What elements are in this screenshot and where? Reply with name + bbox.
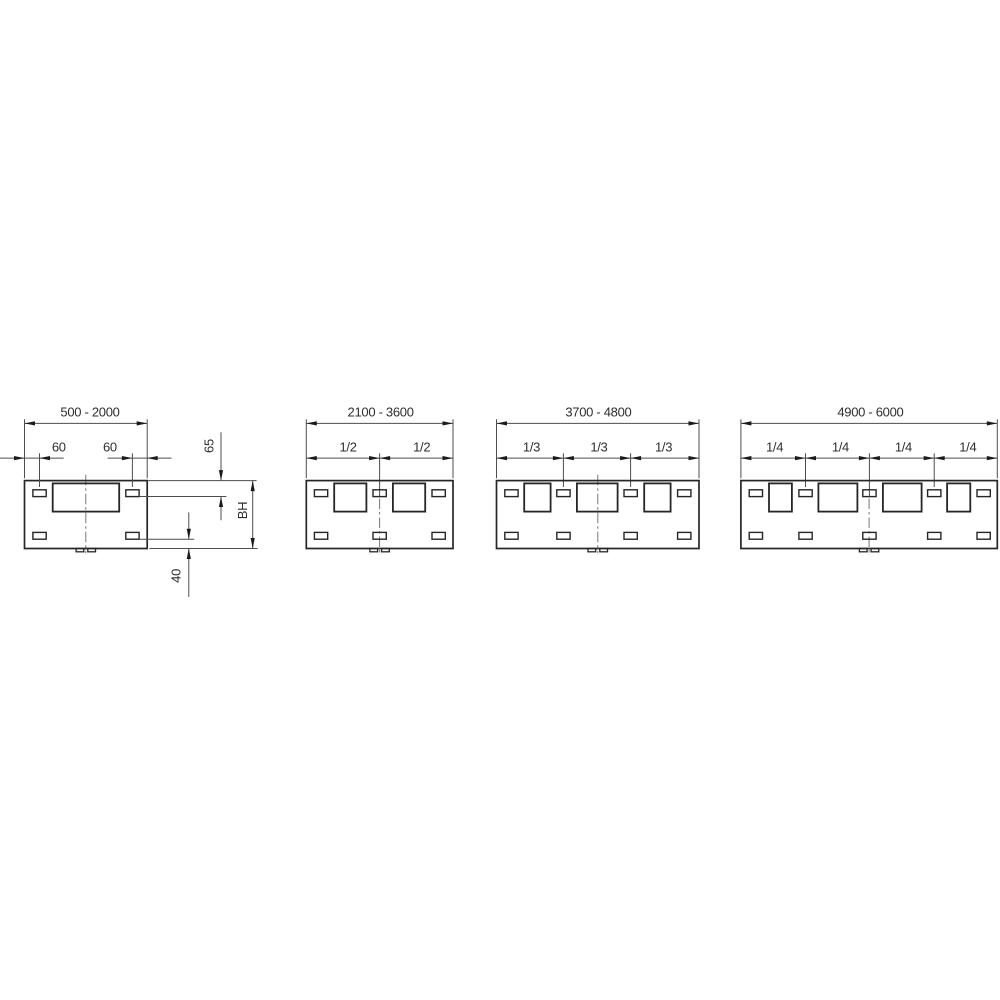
svg-text:1/3: 1/3 xyxy=(523,440,540,455)
svg-text:1/4: 1/4 xyxy=(959,440,976,455)
svg-text:BH: BH xyxy=(235,502,250,519)
svg-text:1/2: 1/2 xyxy=(340,440,357,455)
svg-text:4900 - 6000: 4900 - 6000 xyxy=(837,404,903,419)
svg-text:1/4: 1/4 xyxy=(766,440,783,455)
svg-text:1/3: 1/3 xyxy=(590,440,607,455)
svg-text:60: 60 xyxy=(52,440,66,455)
svg-text:1/4: 1/4 xyxy=(895,440,912,455)
svg-text:1/3: 1/3 xyxy=(655,440,672,455)
svg-text:3700 - 4800: 3700 - 4800 xyxy=(565,404,631,419)
svg-text:1/2: 1/2 xyxy=(413,440,430,455)
svg-text:65: 65 xyxy=(201,439,216,453)
svg-text:2100 - 3600: 2100 - 3600 xyxy=(348,404,414,419)
svg-text:500 - 2000: 500 - 2000 xyxy=(60,404,119,419)
svg-text:1/4: 1/4 xyxy=(832,440,849,455)
svg-text:60: 60 xyxy=(103,440,117,455)
svg-text:40: 40 xyxy=(168,569,183,583)
